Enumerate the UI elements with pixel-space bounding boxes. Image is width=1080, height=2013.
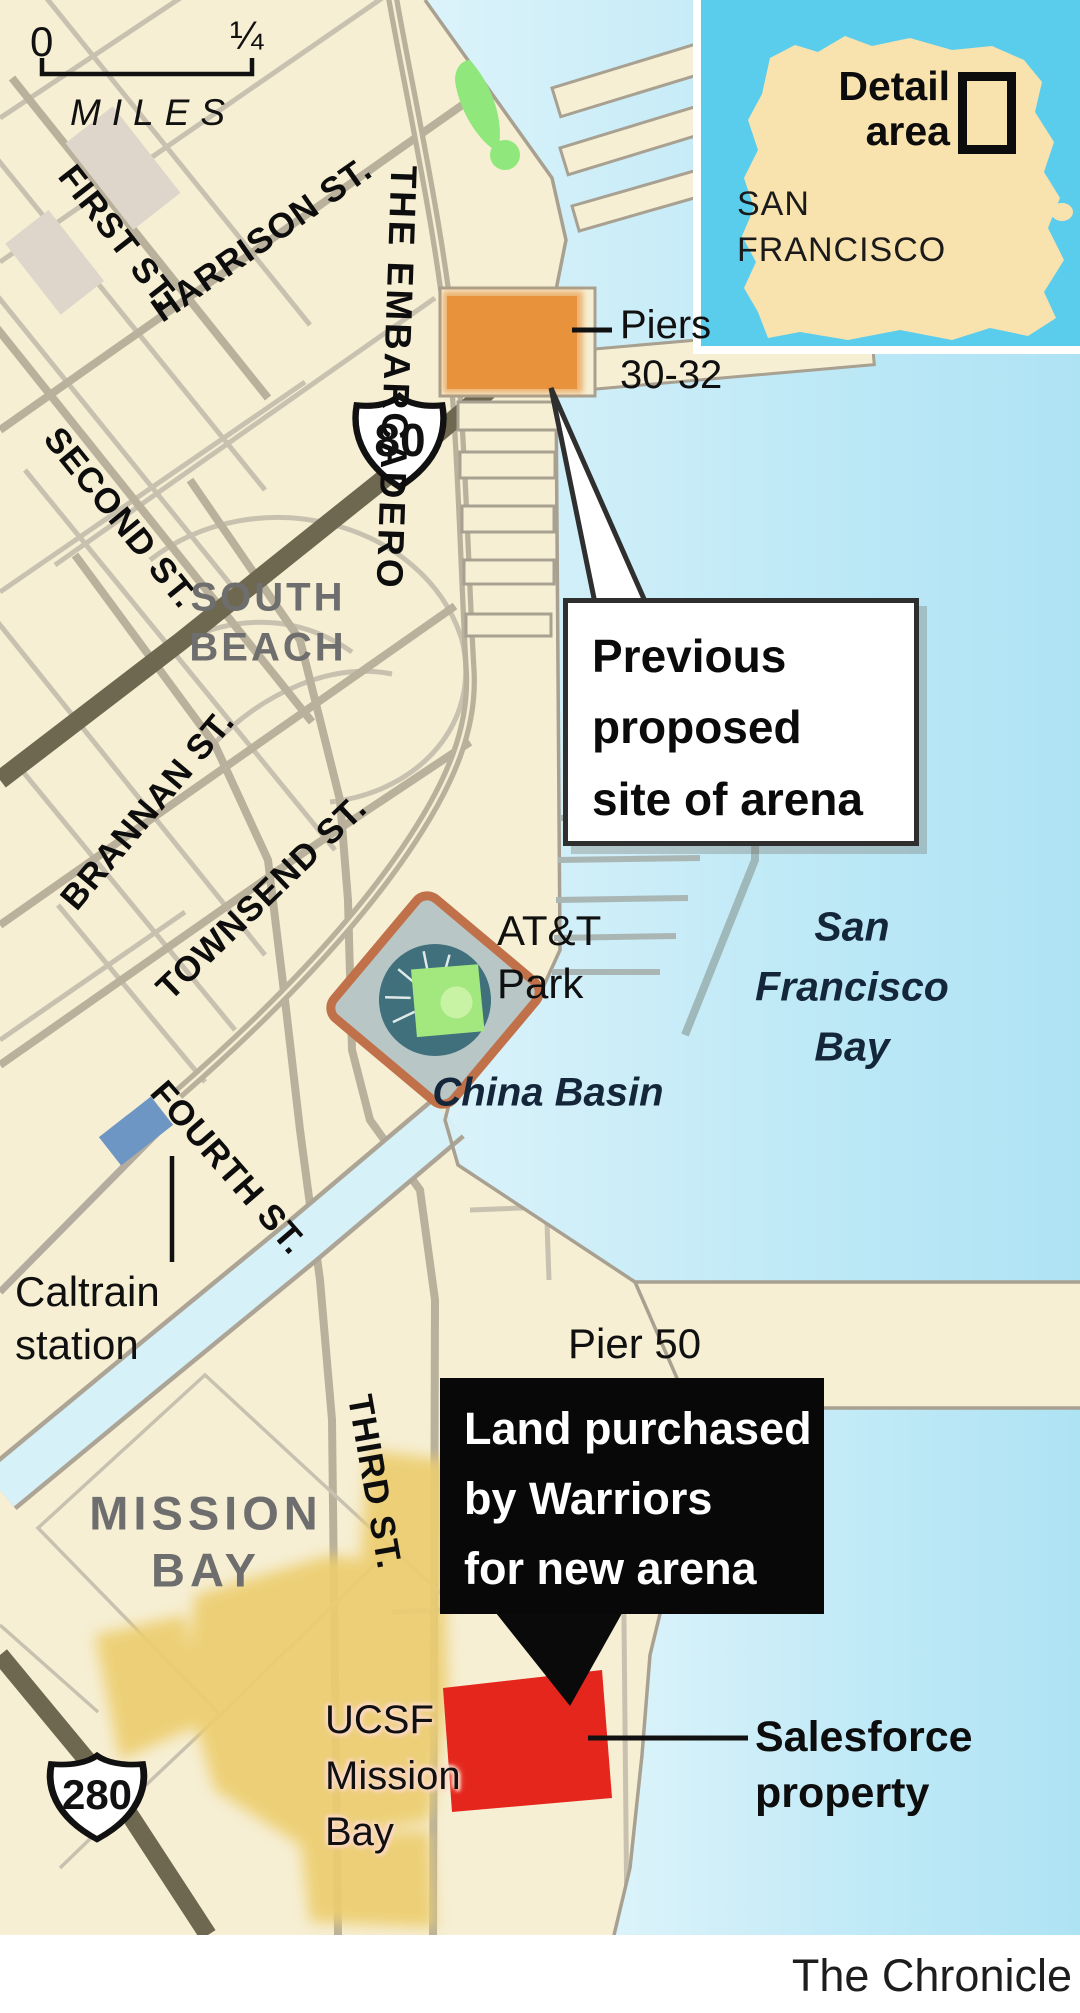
warriors-land-line1: Land purchased (464, 1394, 824, 1464)
inset-city-label: SAN FRANCISCO (737, 182, 946, 274)
poi-caltrain: Caltrain station (15, 1266, 160, 1371)
district-south-beach-line1: SOUTH (191, 576, 346, 621)
water-label-sf-bay-line1: San (814, 904, 889, 951)
water-label-china-basin: China Basin (432, 1071, 663, 1116)
caltrain-line2: station (15, 1319, 160, 1372)
salesforce-line2: property (755, 1766, 973, 1822)
poi-pier50: Pier 50 (568, 1318, 701, 1371)
inset-detail-rect (958, 72, 1016, 154)
scale-unit: MILES (70, 92, 236, 134)
poi-piers-3032: Piers 30-32 (620, 300, 722, 400)
previous-site-line1: Previous (592, 621, 914, 692)
warriors-site-square (443, 1670, 612, 1812)
previous-site-line3: site of arena (592, 764, 914, 835)
water-label-sf-bay-line3: Bay (814, 1024, 889, 1071)
i280-shield-number: 280 (62, 1771, 132, 1819)
previous-site-line2: proposed (592, 692, 914, 763)
inset-map (693, 0, 1080, 354)
caltrain-line1: Caltrain (15, 1266, 160, 1319)
att-park-line1: AT&T (497, 905, 601, 958)
scale-quarter: ¼ (230, 14, 263, 59)
i80-shield-number: 80 (374, 413, 425, 467)
poi-att-park: AT&T Park (497, 905, 601, 1010)
inset-detail-area-label: Detail area (768, 64, 950, 154)
warriors-land-line2: by Warriors (464, 1464, 824, 1534)
warriors-land-line3: for new arena (464, 1534, 824, 1604)
previous-site-callout: Previous proposed site of arena (563, 598, 919, 846)
salesforce-line1: Salesforce (755, 1710, 973, 1766)
scale-zero: 0 (30, 18, 53, 66)
district-mission-bay-line1: MISSION (89, 1486, 322, 1541)
credit: The Chronicle (640, 1950, 1072, 2002)
piers-3032-line1: Piers (620, 300, 722, 350)
inset-detail-line2: area (768, 109, 950, 154)
district-mission-bay-line2: BAY (151, 1543, 261, 1598)
district-south-beach-line2: BEACH (189, 626, 346, 671)
map-graphic: 0 ¼ MILES FIRST ST. SECOND ST. HARRISON … (0, 0, 1080, 2013)
inset-detail-line1: Detail (768, 64, 950, 109)
inset-city-line2: FRANCISCO (737, 228, 946, 274)
inset-city-line1: SAN (737, 182, 946, 228)
salesforce-label: Salesforce property (755, 1710, 973, 1822)
warriors-land-callout: Land purchased by Warriors for new arena (440, 1378, 824, 1614)
piers-3032-site (440, 288, 595, 396)
att-park-line2: Park (497, 958, 601, 1011)
water-label-sf-bay-line2: Francisco (755, 964, 949, 1011)
piers-3032-line2: 30-32 (620, 350, 722, 400)
